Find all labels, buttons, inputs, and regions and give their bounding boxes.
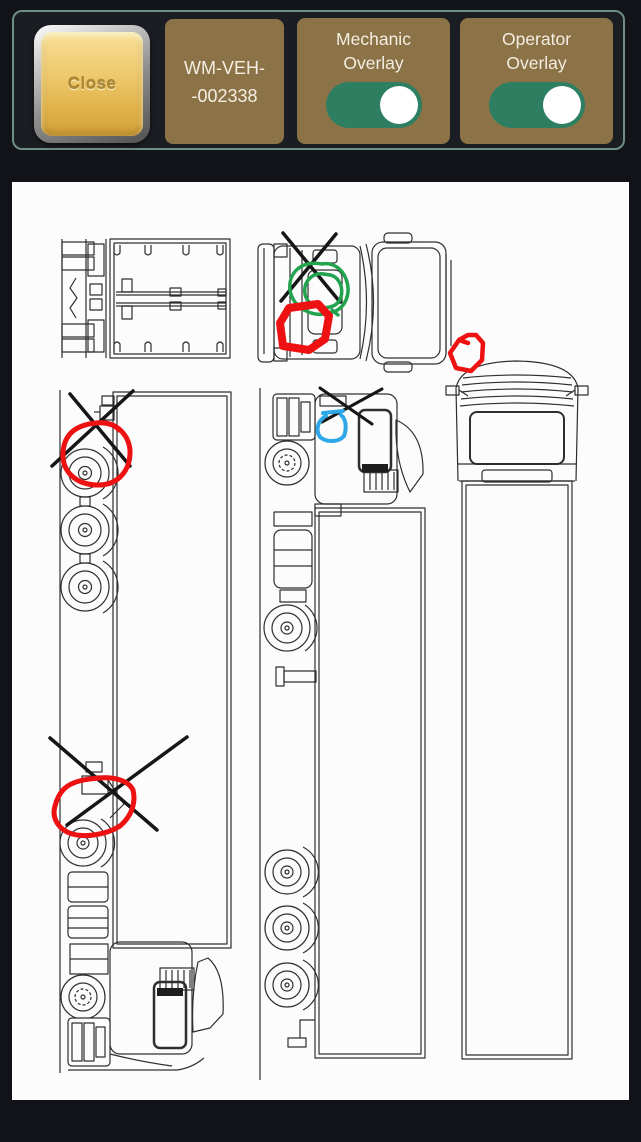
operator-overlay-toggle-knob xyxy=(543,86,581,124)
close-button-label: Close xyxy=(68,74,117,94)
operator-overlay-panel: Operator Overlay xyxy=(460,18,613,144)
vehicle-id-line2: -002338 xyxy=(165,85,284,107)
blue-outline-right-cab[interactable] xyxy=(323,411,343,413)
vehicle-id-line1: WM-VEH- xyxy=(165,57,284,79)
vehicle-id-panel: WM-VEH- -002338 xyxy=(165,19,284,144)
blue-outline-right-cab[interactable] xyxy=(318,415,346,441)
mechanic-overlay-label-line1: Mechanic xyxy=(297,27,450,51)
mechanic-overlay-label-line2: Overlay xyxy=(297,51,450,75)
close-button[interactable]: Close xyxy=(34,25,150,143)
operator-overlay-toggle[interactable] xyxy=(489,82,585,128)
black-x-left-fifth-wheel[interactable] xyxy=(50,738,157,830)
red-scribble-front-roof[interactable] xyxy=(450,335,483,371)
operator-overlay-label-line2: Overlay xyxy=(460,51,613,75)
mechanic-overlay-toggle-knob xyxy=(380,86,418,124)
operator-overlay-label-line1: Operator xyxy=(460,27,613,51)
mechanic-overlay-toggle[interactable] xyxy=(326,82,422,128)
vehicle-damage-canvas[interactable] xyxy=(12,182,629,1100)
close-button-face: Close xyxy=(41,32,143,136)
toolbar: Close WM-VEH- -002338 Mechanic Overlay O… xyxy=(12,10,625,150)
annotation-layer[interactable] xyxy=(12,182,629,1100)
mechanic-overlay-panel: Mechanic Overlay xyxy=(297,18,450,144)
app-root: { "header": { "close_button": "Close", "… xyxy=(0,0,641,1142)
